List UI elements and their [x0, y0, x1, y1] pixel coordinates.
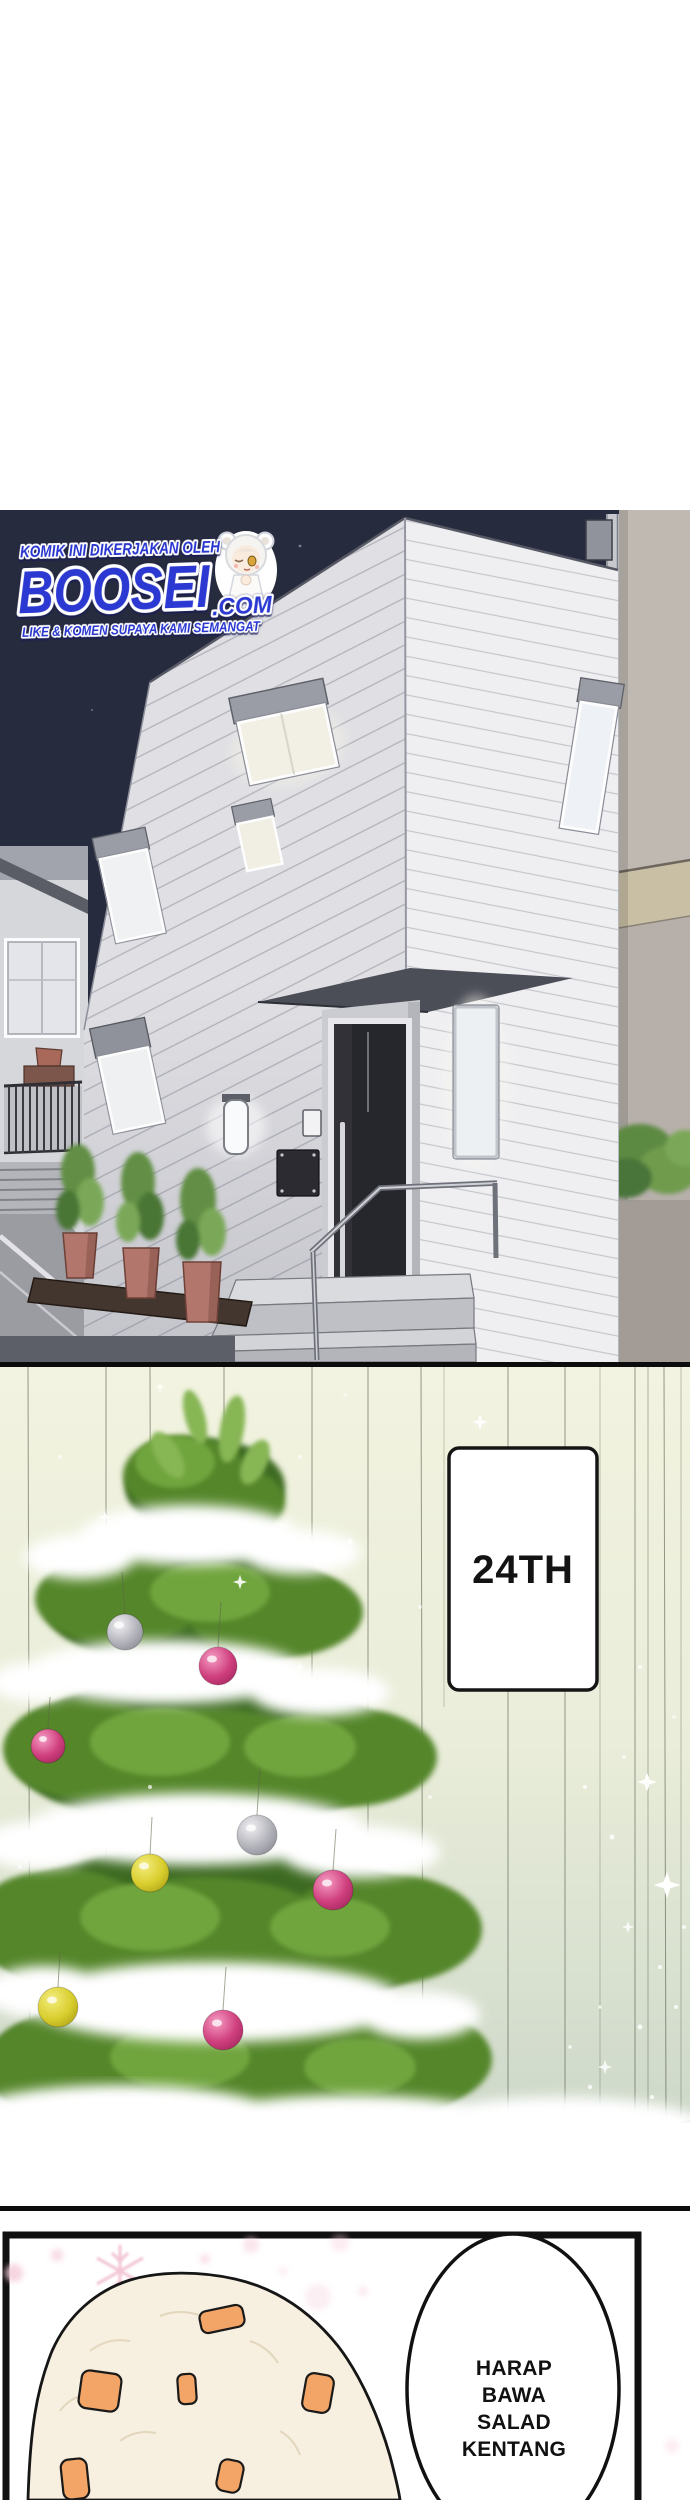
panel-border: [0, 2206, 690, 2211]
speech-line-1: HARAP: [476, 2357, 552, 2380]
bauble-yellow: [38, 1987, 78, 2027]
entrance-side-window: [442, 994, 510, 1170]
speech-line-4: KENTANG: [462, 2438, 566, 2461]
manga-page: KOMIK INI DIKERJAKAN OLEH BOOSEI .COM LI…: [0, 0, 690, 2500]
boosei-watermark: KOMIK INI DIKERJAKAN OLEH BOOSEI .COM LI…: [14, 524, 294, 646]
balcony-pot: [36, 1048, 62, 1066]
bauble-yellow: [131, 1854, 169, 1892]
carrot-chunk: [301, 2372, 335, 2414]
bauble-pink: [203, 2010, 243, 2050]
intercom-panel: [277, 1150, 319, 1196]
bauble-silver: [107, 1614, 143, 1650]
carrot-chunk: [78, 2369, 123, 2412]
panel-christmas-tree: 24TH: [0, 1367, 690, 2206]
pole-junction-box: [586, 520, 612, 560]
nameplate: [303, 1110, 321, 1136]
date-sign: 24TH: [449, 1448, 597, 1690]
bauble-pink: [31, 1729, 65, 1763]
carrot-chunk: [60, 2458, 90, 2500]
panel-potato-salad: HARAP BAWA SALAD KENTANG: [0, 2231, 690, 2500]
bauble-pink: [313, 1870, 353, 1910]
bauble-pink: [199, 1647, 237, 1685]
carrot-chunk: [177, 2373, 197, 2404]
speech-line-2: BAWA: [482, 2384, 546, 2407]
snow-mound: [0, 2085, 690, 2206]
date-sign-label: 24TH: [472, 1548, 574, 1592]
brand-suffix: .COM: [211, 591, 273, 621]
speech-line-3: SALAD: [477, 2411, 551, 2434]
bauble-silver: [237, 1815, 277, 1855]
neighbor-window: [4, 938, 80, 1038]
street-shadow: [0, 1336, 235, 1362]
brand-text: BOOSEI: [17, 553, 212, 627]
